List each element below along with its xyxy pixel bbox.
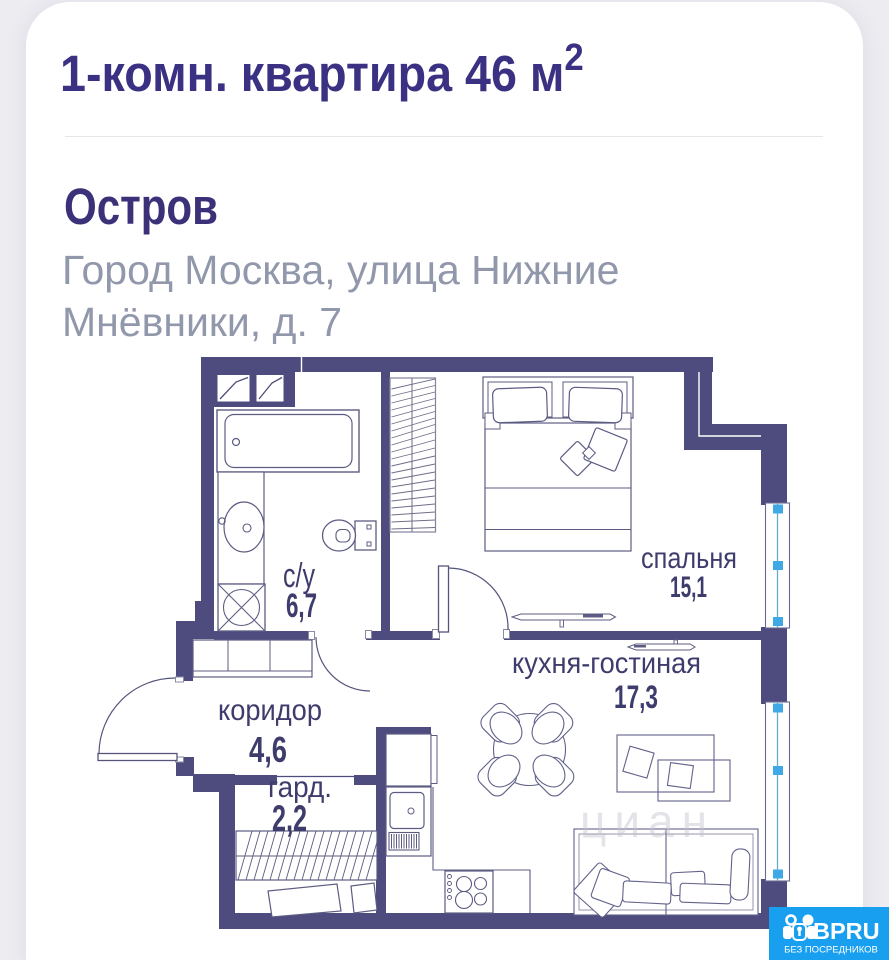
svg-text:15,1: 15,1	[670, 571, 707, 604]
svg-text:коридор: коридор	[218, 694, 322, 727]
svg-text:кухня-гостиная: кухня-гостиная	[512, 647, 701, 680]
svg-text:BPRU: BPRU	[813, 918, 880, 944]
svg-text:6,7: 6,7	[286, 587, 317, 625]
svg-text:2,2: 2,2	[272, 798, 307, 839]
svg-text:БЕЗ ПОСРЕДНИКОВ: БЕЗ ПОСРЕДНИКОВ	[784, 945, 878, 956]
svg-text:17,3: 17,3	[614, 679, 658, 715]
svg-text:4,6: 4,6	[249, 729, 287, 770]
svg-text:циан: циан	[580, 795, 715, 847]
